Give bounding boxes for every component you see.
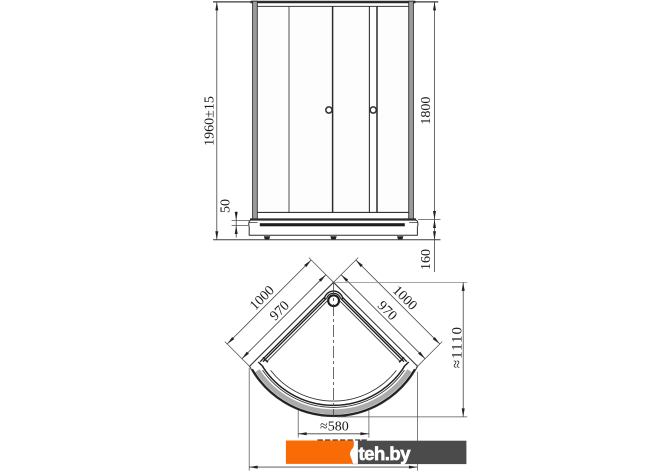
svg-text:1800: 1800 [419, 97, 434, 125]
svg-text:50: 50 [219, 199, 234, 213]
svg-text:≈1110: ≈1110 [449, 326, 465, 368]
svg-text:≈580: ≈580 [320, 419, 349, 434]
svg-text:160: 160 [419, 249, 434, 270]
svg-text:1960±15: 1960±15 [202, 96, 217, 146]
svg-text:teh.by: teh.by [359, 443, 412, 464]
